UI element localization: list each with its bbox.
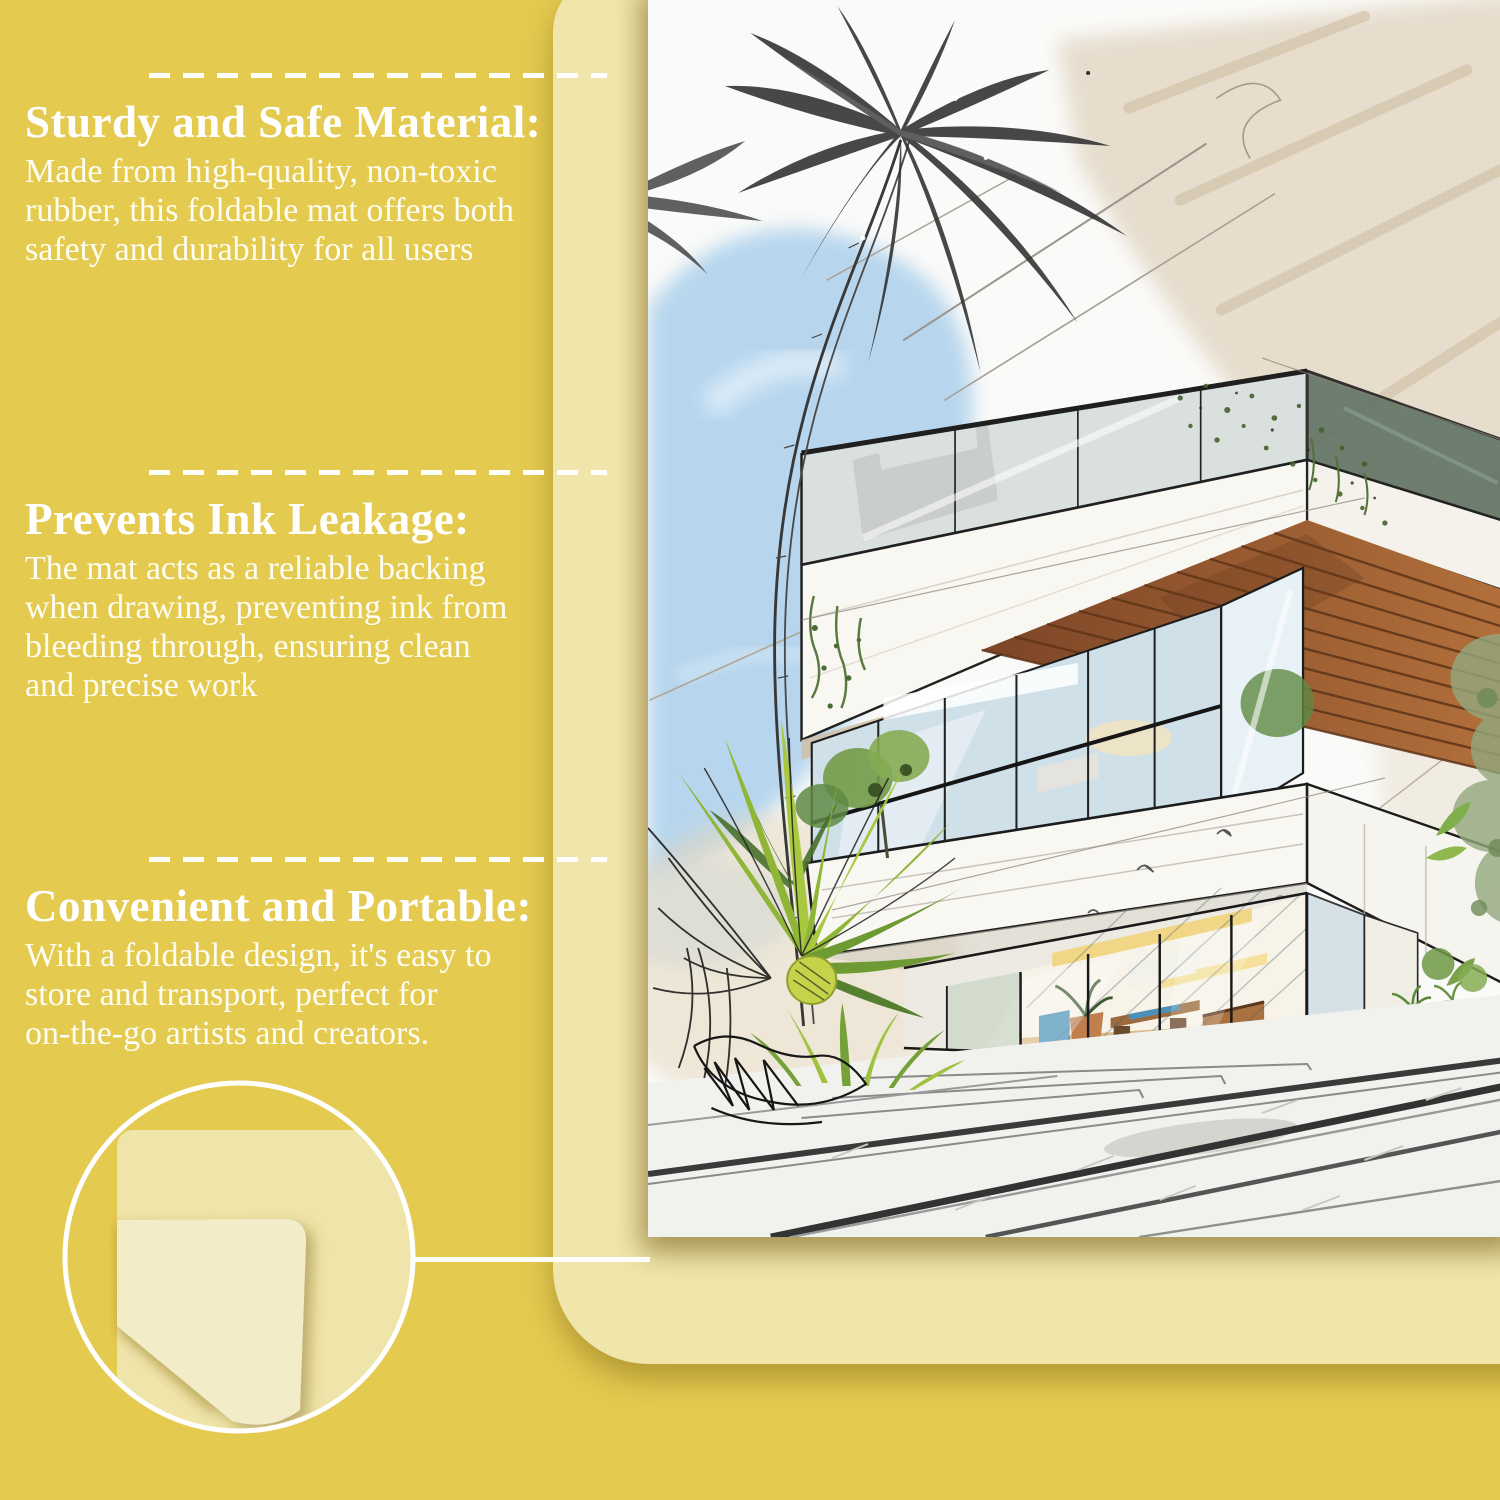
dashed-divider xyxy=(149,857,607,862)
feature-body: With a foldable design, it's easy to sto… xyxy=(25,936,640,1053)
feature-title: Prevents Ink Leakage: xyxy=(25,495,640,543)
feature-block-ink-leakage: Prevents Ink Leakage: The mat acts as a … xyxy=(0,470,640,705)
dashed-divider xyxy=(149,73,607,78)
dashed-divider xyxy=(149,470,607,475)
feature-title: Convenient and Portable: xyxy=(25,882,640,930)
building xyxy=(802,371,1500,1078)
folded-corner-illustration xyxy=(56,1074,424,1442)
connector-line xyxy=(412,1257,650,1262)
feature-body: The mat acts as a reliable backing when … xyxy=(25,549,640,705)
product-infographic: Sturdy and Safe Material: Made from high… xyxy=(0,0,1500,1500)
house-sketch-illustration xyxy=(648,0,1500,1237)
feature-block-portable: Convenient and Portable: With a foldable… xyxy=(0,857,640,1053)
sketch-paper xyxy=(648,0,1500,1237)
feature-body: Made from high-quality, non-toxic rubber… xyxy=(25,152,640,269)
feature-title: Sturdy and Safe Material: xyxy=(25,98,640,146)
feature-block-material: Sturdy and Safe Material: Made from high… xyxy=(0,73,640,269)
